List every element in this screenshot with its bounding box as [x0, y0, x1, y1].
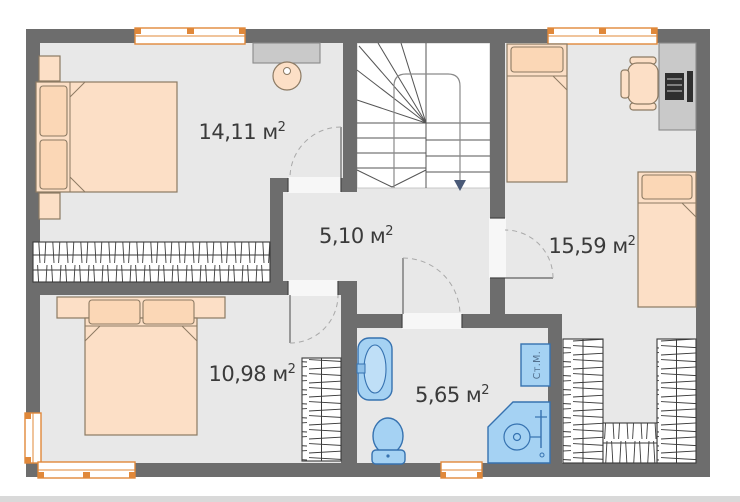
- pillow: [642, 175, 692, 199]
- pillow: [511, 47, 563, 72]
- nightstand: [39, 56, 60, 81]
- floor-plan-svg: Ст.М.: [0, 0, 740, 502]
- washing-machine-label: Ст.М.: [532, 351, 543, 379]
- seat: [628, 63, 658, 104]
- room-label-bathroom: 5,65 м2: [415, 383, 489, 407]
- chair-back: [621, 70, 629, 98]
- toilet: [372, 418, 405, 464]
- window-bedroom-1: [135, 28, 245, 44]
- washing-machine: Ст.М.: [521, 344, 550, 386]
- pillow: [89, 300, 140, 324]
- dresser: [253, 43, 320, 63]
- room-label-hall: 5,10 м2: [319, 224, 393, 248]
- wall-hall-left: [270, 192, 283, 295]
- nightstand: [39, 193, 60, 219]
- window-kids-bedroom: [548, 28, 657, 44]
- wardrobe: [563, 339, 603, 463]
- single-bed: [507, 44, 567, 182]
- floor-plan-page: Ст.М.: [0, 0, 740, 502]
- window-bedroom-2-bottom: [38, 462, 135, 478]
- pillow: [40, 140, 67, 189]
- headboard: [57, 297, 225, 318]
- wardrobe: [603, 423, 657, 463]
- computer: [665, 71, 693, 102]
- window-bedroom-2-left: [25, 413, 41, 463]
- window-bathroom: [441, 462, 482, 478]
- wall-stairs-left: [343, 43, 357, 192]
- single-bed: [638, 172, 696, 307]
- sink: [357, 338, 392, 400]
- wardrobe: [33, 242, 270, 282]
- page-bottom-strip: [0, 496, 740, 502]
- stool: [273, 62, 301, 90]
- pillow: [40, 86, 67, 136]
- room-label-bedroom-1: 14,11 м2: [199, 120, 286, 144]
- pillow: [143, 300, 194, 324]
- wall-bathroom-left: [341, 295, 357, 463]
- room-label-bedroom-2: 10,98 м2: [209, 362, 296, 386]
- double-bed: [36, 82, 177, 192]
- wardrobe: [302, 358, 341, 461]
- room-label-kids-bedroom: 15,59 м2: [549, 234, 636, 258]
- wardrobe: [657, 339, 696, 463]
